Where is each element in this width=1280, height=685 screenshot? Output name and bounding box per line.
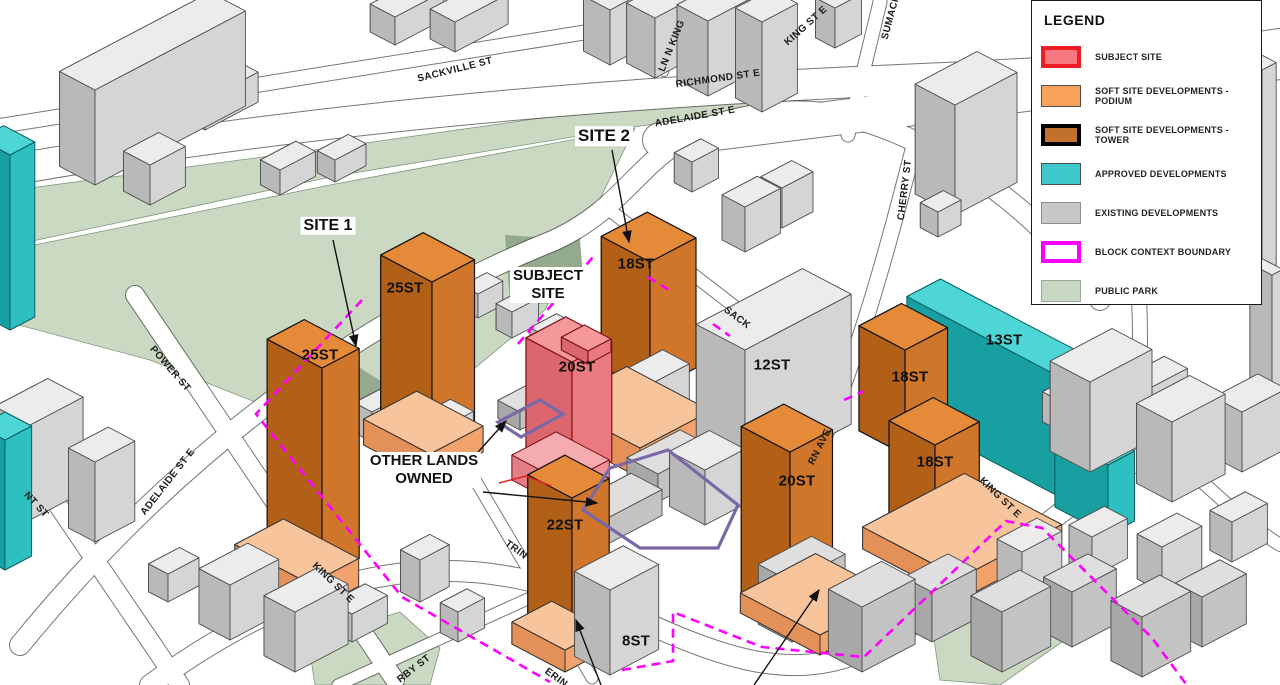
building-label-18st-site2: 18ST [618, 256, 655, 273]
legend-item-existing: EXISTING DEVELOPMENTS [1041, 202, 1218, 224]
legend-item-podium: SOFT SITE DEVELOPMENTS - PODIUM [1041, 85, 1261, 107]
legend-swatch-existing [1041, 202, 1081, 224]
legend-item-park: PUBLIC PARK [1041, 280, 1158, 302]
legend-title: LEGEND [1044, 12, 1261, 28]
building-label-8st: 8ST [622, 633, 650, 650]
legend-label-subject-site: SUBJECT SITE [1095, 52, 1162, 62]
building-label-22st: 22ST [547, 517, 584, 534]
building-label-13st: 13ST [986, 332, 1023, 349]
building-label-18st-east-b: 18ST [917, 454, 954, 471]
subject-site-line2: SITE [513, 285, 583, 303]
legend-swatch-approved [1041, 163, 1081, 185]
legend-swatch-subject-site [1041, 46, 1081, 68]
legend-panel: LEGEND SUBJECT SITE SOFT SITE DEVELOPMEN… [1031, 0, 1262, 305]
site-plan-canvas: SACKVILLE ST RICHMOND ST E ADELAIDE ST E… [0, 0, 1280, 685]
legend-item-subject-site: SUBJECT SITE [1041, 46, 1162, 68]
legend-item-tower: SOFT SITE DEVELOPMENTS - TOWER [1041, 124, 1261, 146]
legend-swatch-podium [1041, 85, 1081, 107]
building-label-25st-a: 25ST [302, 347, 339, 364]
site2-label: SITE 2 [575, 126, 633, 146]
legend-label-existing: EXISTING DEVELOPMENTS [1095, 208, 1218, 218]
building-label-20st-south: 20ST [779, 473, 816, 490]
subject-site-line1: SUBJECT [513, 267, 583, 285]
building-label-25st-b: 25ST [387, 280, 424, 297]
other-lands-line1: OTHER LANDS [370, 452, 478, 470]
legend-swatch-park [1041, 280, 1081, 302]
other-lands-owned-label: OTHER LANDS OWNED [367, 452, 481, 488]
legend-swatch-boundary [1041, 241, 1081, 263]
other-lands-line2: OWNED [370, 470, 478, 488]
site1-label: SITE 1 [301, 217, 356, 235]
subject-site-label: SUBJECT SITE [510, 267, 586, 303]
legend-item-boundary: BLOCK CONTEXT BOUNDARY [1041, 241, 1231, 263]
legend-label-boundary: BLOCK CONTEXT BOUNDARY [1095, 247, 1231, 257]
building-label-12st: 12ST [754, 357, 791, 374]
legend-label-tower: SOFT SITE DEVELOPMENTS - TOWER [1095, 125, 1261, 145]
building-label-18st-east-a: 18ST [892, 369, 929, 386]
legend-label-podium: SOFT SITE DEVELOPMENTS - PODIUM [1095, 86, 1261, 106]
legend-item-approved: APPROVED DEVELOPMENTS [1041, 163, 1227, 185]
legend-swatch-tower [1041, 124, 1081, 146]
legend-label-approved: APPROVED DEVELOPMENTS [1095, 169, 1227, 179]
building-label-20st-subject: 20ST [559, 359, 596, 376]
legend-label-park: PUBLIC PARK [1095, 286, 1158, 296]
